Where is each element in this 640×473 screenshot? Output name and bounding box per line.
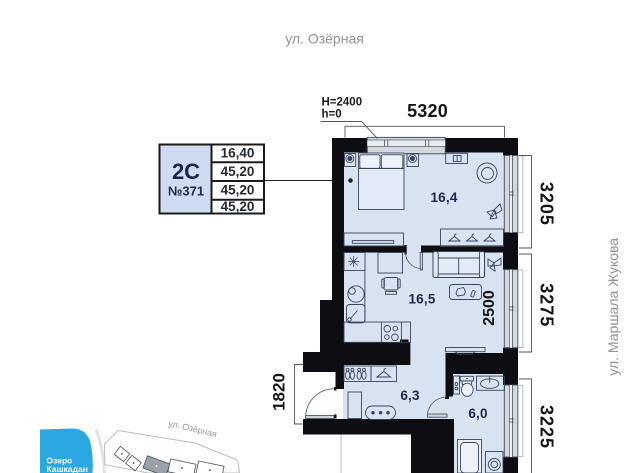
svg-text:3225: 3225 [536, 405, 556, 449]
svg-text:№371: №371 [168, 184, 204, 199]
svg-text:16,5: 16,5 [408, 292, 435, 307]
svg-text:ул. Маршала Жукова: ул. Маршала Жукова [605, 238, 621, 376]
svg-text:6,3: 6,3 [400, 388, 420, 403]
svg-text:3275: 3275 [536, 283, 556, 327]
svg-text:ул. Озёрная: ул. Озёрная [285, 31, 364, 47]
svg-text:3205: 3205 [536, 182, 556, 226]
svg-text:16,4: 16,4 [430, 190, 457, 205]
svg-text:45,20: 45,20 [221, 164, 255, 179]
svg-text:16,40: 16,40 [221, 146, 255, 161]
svg-text:45,20: 45,20 [221, 199, 255, 214]
svg-text:6,0: 6,0 [468, 406, 487, 421]
svg-text:5320: 5320 [407, 101, 448, 121]
svg-text:1820: 1820 [269, 373, 288, 411]
svg-text:h=0: h=0 [322, 109, 342, 121]
svg-text:Кашкадан: Кашкадан [47, 464, 88, 473]
svg-text:2500: 2500 [481, 290, 498, 326]
svg-text:H=2400: H=2400 [322, 97, 363, 109]
svg-text:2С: 2С [172, 159, 200, 184]
svg-text:45,20: 45,20 [221, 183, 255, 198]
